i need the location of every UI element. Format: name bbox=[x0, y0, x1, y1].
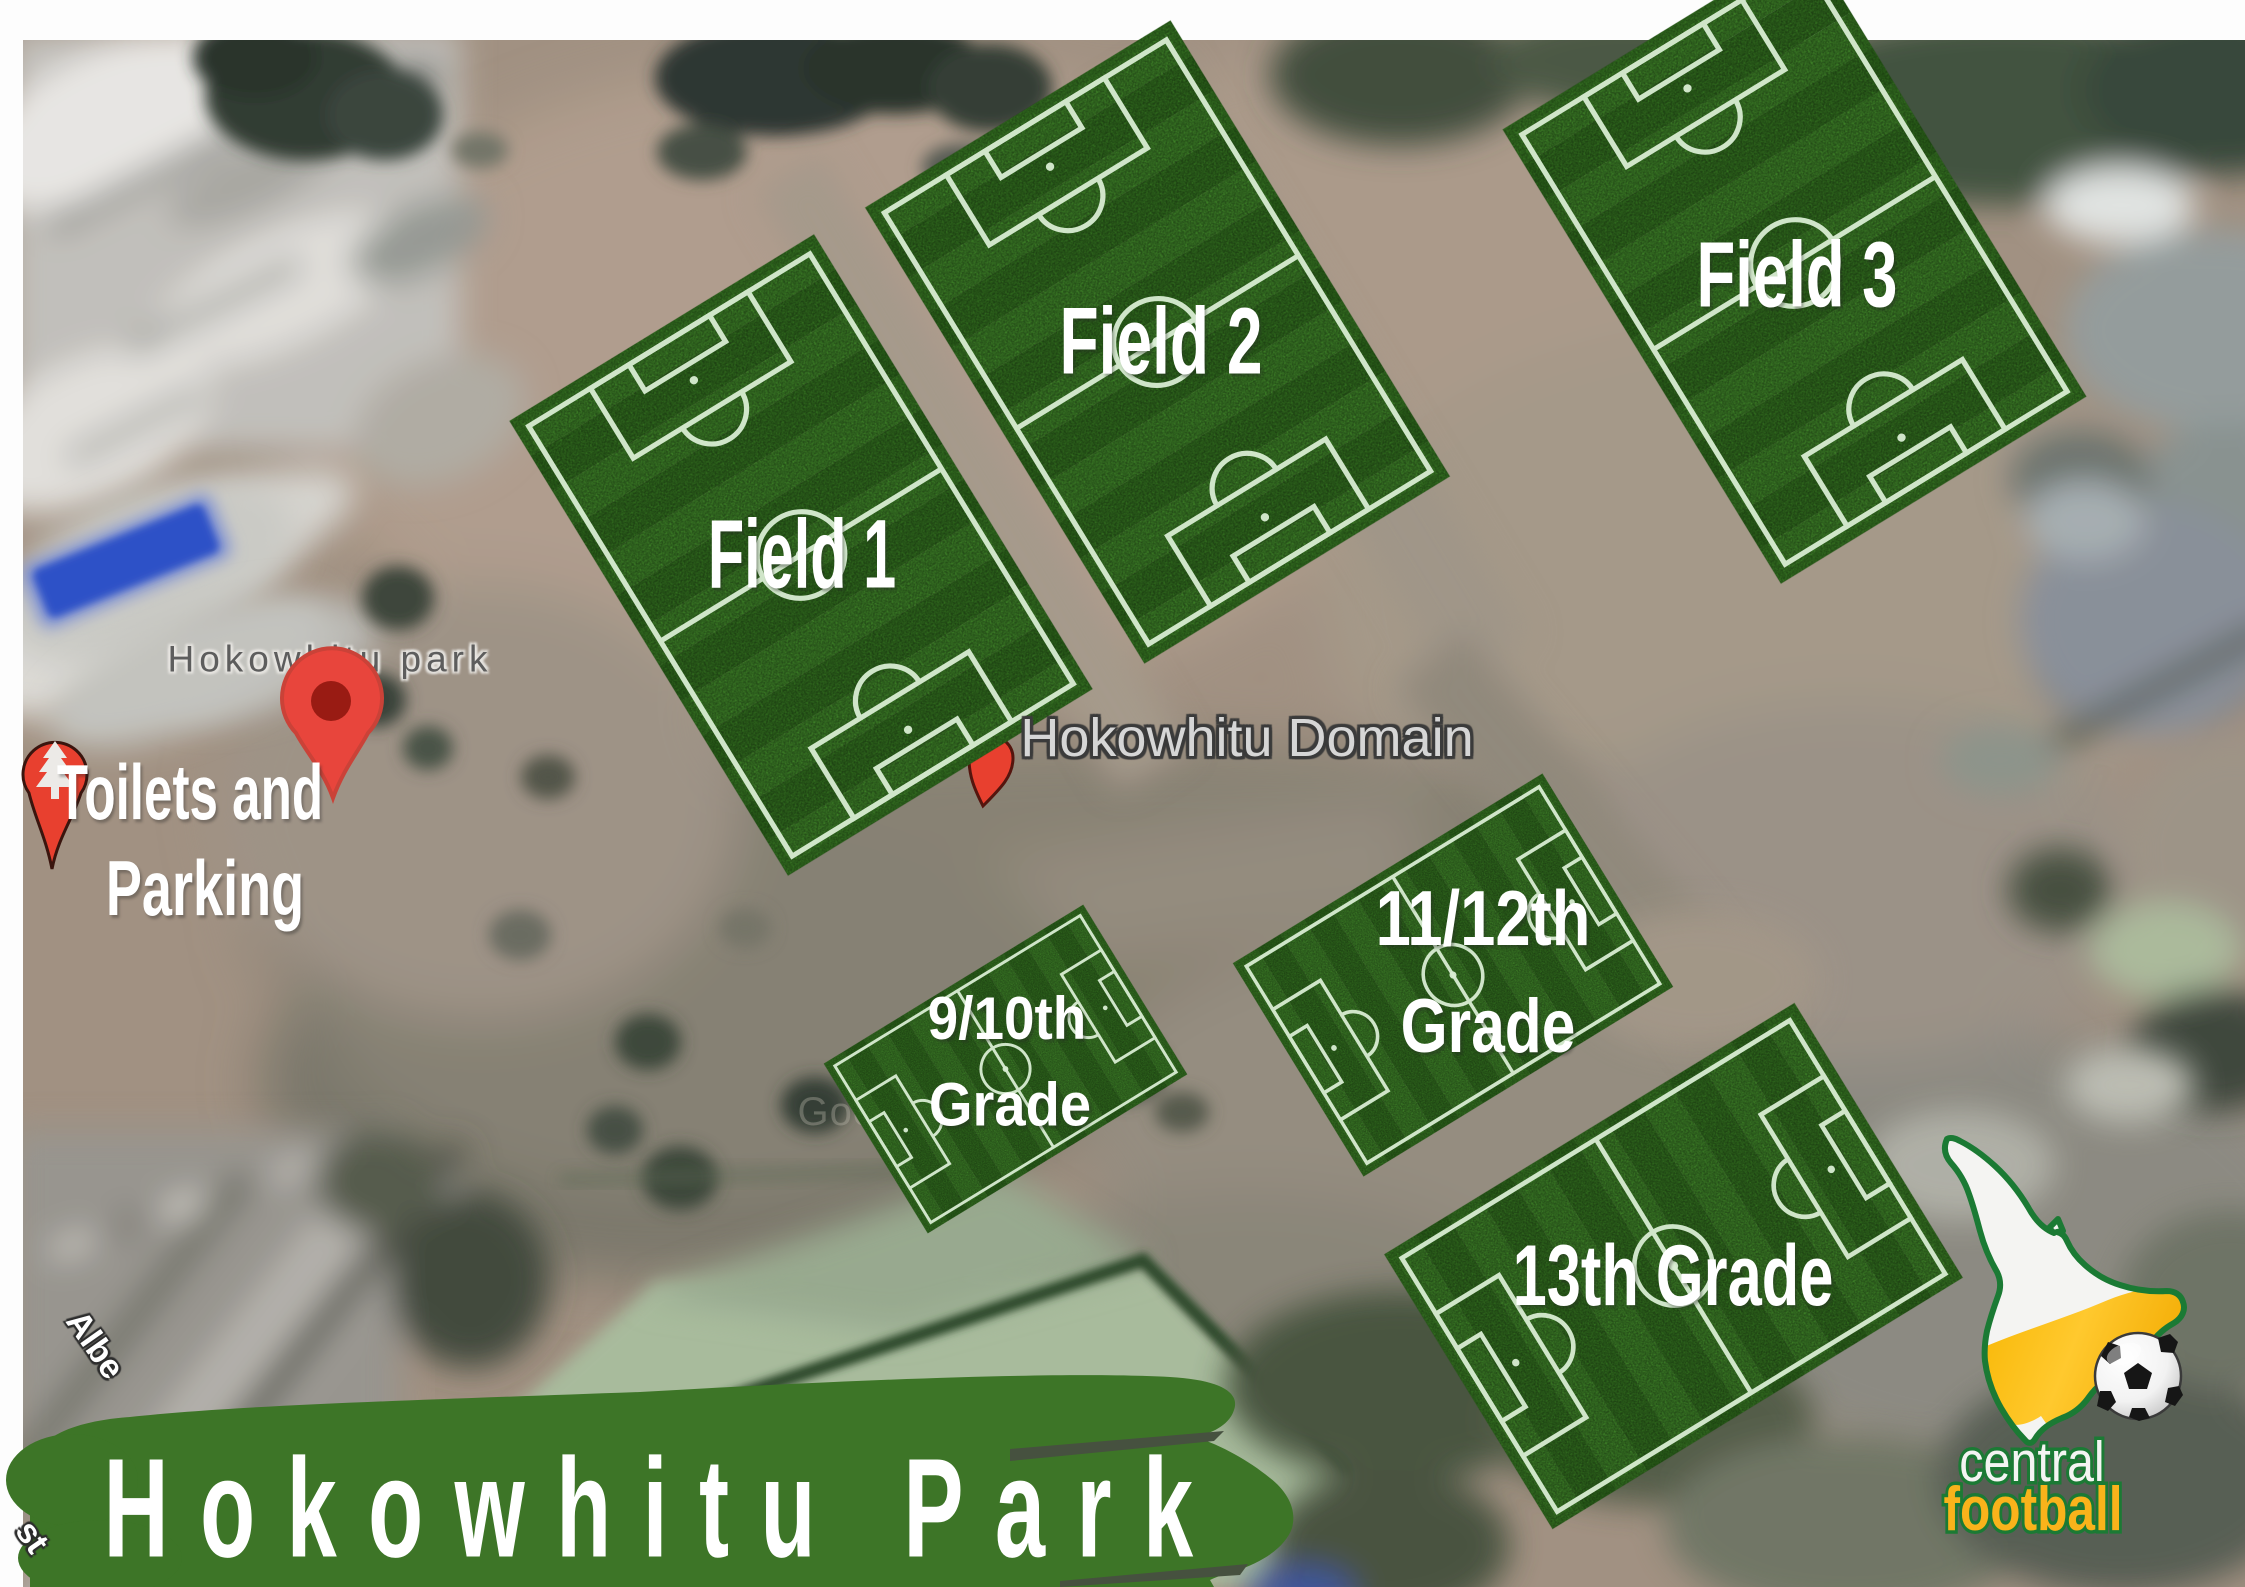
svg-text:football: football bbox=[1943, 1474, 2122, 1544]
